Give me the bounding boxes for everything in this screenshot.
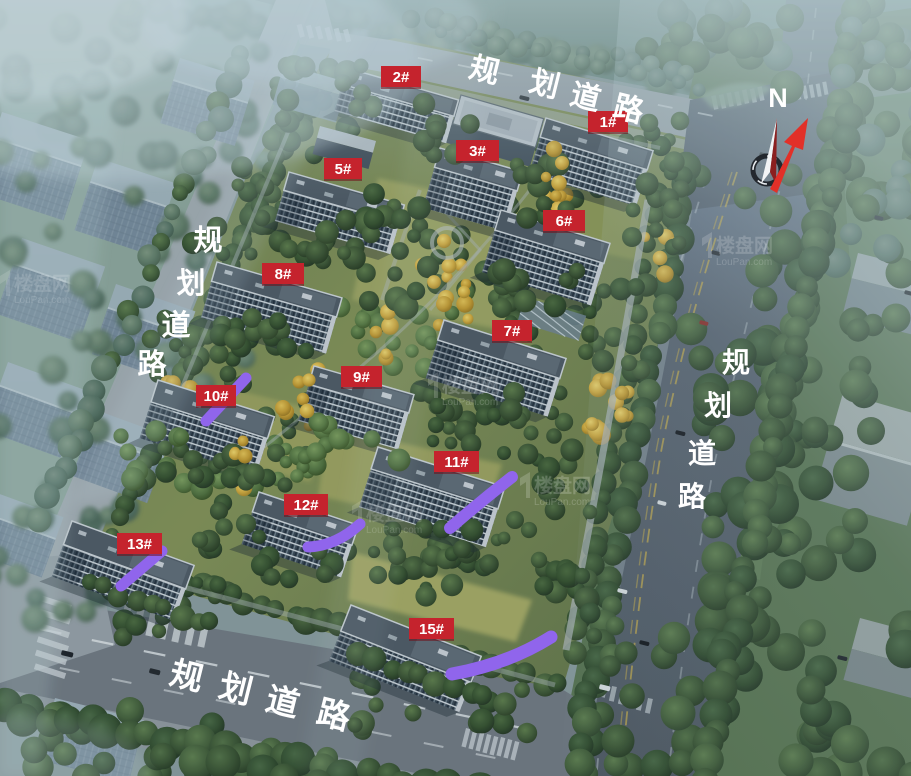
svg-text:12#: 12#	[293, 497, 319, 514]
svg-text:LouPan.com: LouPan.com	[534, 497, 590, 508]
svg-text:楼盘网: 楼盘网	[442, 374, 499, 397]
svg-text:路: 路	[678, 481, 707, 512]
svg-text:6#: 6#	[556, 213, 573, 230]
svg-text:道: 道	[161, 309, 190, 342]
svg-text:划: 划	[176, 267, 205, 300]
svg-text:13#: 13#	[127, 536, 153, 553]
svg-text:9#: 9#	[353, 369, 370, 386]
svg-text:10#: 10#	[203, 388, 229, 405]
svg-text:11#: 11#	[444, 454, 469, 471]
svg-text:3#: 3#	[469, 143, 486, 160]
svg-text:8#: 8#	[275, 266, 292, 283]
svg-text:LouPan.com: LouPan.com	[716, 257, 772, 268]
svg-text:15#: 15#	[419, 621, 445, 638]
svg-text:规: 规	[193, 224, 222, 257]
svg-text:规: 规	[722, 347, 750, 378]
svg-text:LouPan.com: LouPan.com	[14, 295, 70, 306]
svg-text:5#: 5#	[335, 161, 352, 178]
svg-text:道: 道	[688, 437, 716, 469]
svg-text:N: N	[768, 83, 788, 113]
svg-text:楼盘网: 楼盘网	[534, 474, 591, 497]
svg-text:楼盘网: 楼盘网	[716, 234, 773, 257]
svg-text:路: 路	[137, 348, 167, 381]
svg-text:7#: 7#	[504, 323, 521, 340]
svg-text:楼盘网: 楼盘网	[366, 502, 423, 525]
svg-text:LouPan.com: LouPan.com	[366, 525, 422, 536]
svg-text:划: 划	[704, 390, 732, 421]
svg-text:楼盘网: 楼盘网	[14, 272, 71, 295]
svg-text:2#: 2#	[393, 69, 410, 86]
svg-text:LouPan.com: LouPan.com	[442, 397, 498, 408]
